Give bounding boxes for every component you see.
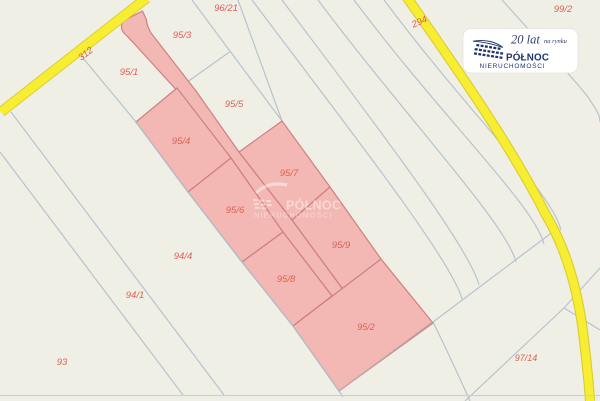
svg-text:97/14: 97/14: [515, 353, 538, 363]
svg-text:95/5: 95/5: [225, 99, 244, 110]
svg-text:94/1: 94/1: [126, 290, 145, 301]
svg-text:95/7: 95/7: [280, 168, 299, 179]
svg-text:95/9: 95/9: [332, 240, 351, 251]
svg-text:95/3: 95/3: [173, 30, 192, 41]
svg-text:na rynku: na rynku: [544, 38, 568, 45]
svg-text:95/2: 95/2: [357, 322, 375, 332]
svg-text:20 lat: 20 lat: [511, 33, 540, 47]
svg-text:95/4: 95/4: [172, 136, 191, 147]
svg-text:NIERUCHOMOŚCI: NIERUCHOMOŚCI: [254, 211, 333, 220]
svg-text:93: 93: [57, 357, 68, 368]
svg-text:95/6: 95/6: [226, 205, 245, 216]
svg-text:95/1: 95/1: [120, 67, 139, 78]
svg-text:PÓŁNOC: PÓŁNOC: [506, 52, 549, 64]
svg-text:99/2: 99/2: [554, 4, 573, 15]
svg-text:94/4: 94/4: [174, 251, 193, 262]
svg-text:95/8: 95/8: [277, 274, 296, 285]
svg-text:NIERUCHOMOŚCI: NIERUCHOMOŚCI: [480, 61, 546, 70]
svg-text:96/21: 96/21: [214, 3, 238, 14]
